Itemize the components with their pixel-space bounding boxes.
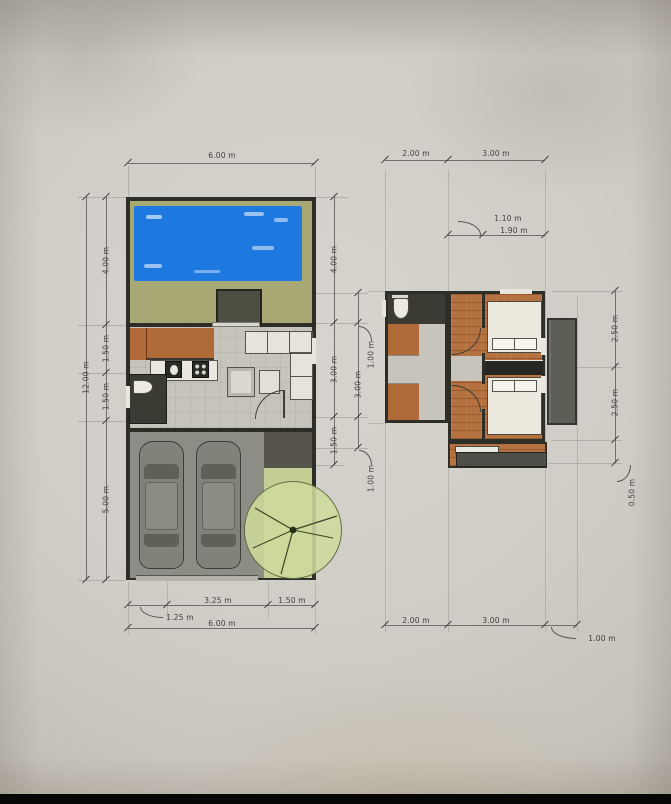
dim-label: 3.00 m bbox=[466, 149, 526, 158]
balcony-door bbox=[541, 376, 546, 393]
bathroom-window-upper bbox=[382, 300, 386, 317]
patio-slider-door bbox=[212, 322, 260, 327]
living-window bbox=[312, 338, 316, 364]
dim-line bbox=[385, 625, 577, 626]
toilet-tank bbox=[392, 295, 408, 298]
bathroom-window bbox=[126, 386, 130, 408]
wardrobe bbox=[485, 360, 543, 375]
upper-floor-plan: 2.00 m 3.00 m 1.10 m 1.90 m 2.50 m 2.50 … bbox=[0, 0, 671, 804]
floor-plan-photo: 6.00 m 12.00 m 4.00 m 1.50 m 1.50 m 5.00… bbox=[0, 0, 671, 804]
pillow bbox=[514, 338, 537, 350]
extension-planter bbox=[456, 452, 547, 467]
dim-label: 2.50 m bbox=[611, 383, 620, 423]
dim-label: 1.00 m bbox=[580, 634, 624, 643]
photo-bottom-bar bbox=[0, 794, 671, 804]
hallway-arm bbox=[451, 356, 482, 381]
tree-branches bbox=[245, 482, 341, 578]
bedroom-window bbox=[500, 289, 532, 294]
pillow bbox=[492, 338, 515, 350]
leader-curve bbox=[458, 221, 481, 235]
balcony-door bbox=[541, 338, 546, 355]
bed bbox=[487, 301, 542, 353]
construction-line bbox=[545, 170, 546, 632]
bedroom-wall bbox=[482, 409, 485, 439]
dim-label: 2.00 m bbox=[386, 149, 446, 158]
dim-line bbox=[448, 235, 545, 236]
pillow bbox=[514, 380, 537, 392]
construction-line bbox=[368, 423, 386, 424]
dim-label: 3.00 m bbox=[466, 616, 526, 625]
bed bbox=[487, 377, 542, 435]
pillow bbox=[492, 380, 515, 392]
bedroom-wall bbox=[482, 294, 485, 328]
dim-label: 2.00 m bbox=[386, 616, 446, 625]
construction-line bbox=[368, 291, 386, 292]
balcony bbox=[547, 318, 577, 425]
dim-label: 1.90 m bbox=[492, 226, 536, 235]
dim-tick bbox=[541, 156, 549, 164]
leader-curve bbox=[551, 627, 576, 639]
extension-line bbox=[548, 463, 622, 464]
hallway bbox=[419, 324, 445, 420]
dim-label: 0.50 m bbox=[628, 473, 637, 513]
construction-line bbox=[577, 296, 578, 632]
dim-line bbox=[385, 160, 545, 161]
toilet-icon bbox=[393, 298, 409, 319]
stair-landing-upper bbox=[388, 355, 419, 384]
tree bbox=[244, 481, 342, 579]
dim-label: 2.50 m bbox=[611, 309, 620, 349]
dim-label: 1.10 m bbox=[486, 214, 530, 223]
